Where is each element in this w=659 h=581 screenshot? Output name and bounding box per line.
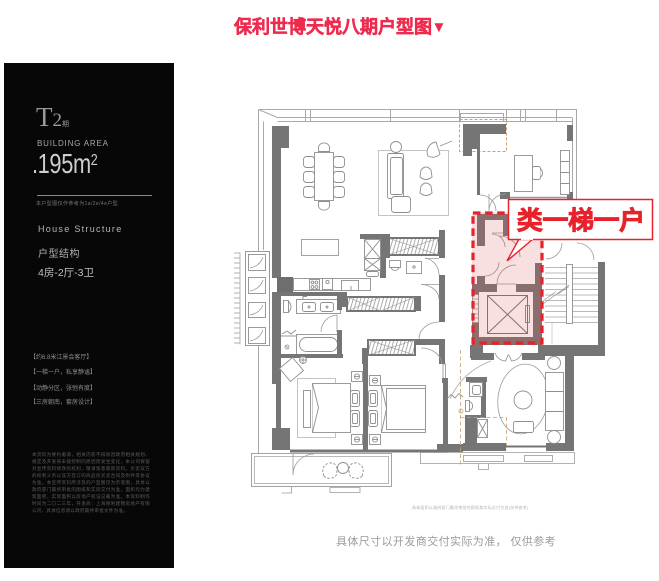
svg-text:类一梯一户: 类一梯一户	[517, 206, 645, 235]
